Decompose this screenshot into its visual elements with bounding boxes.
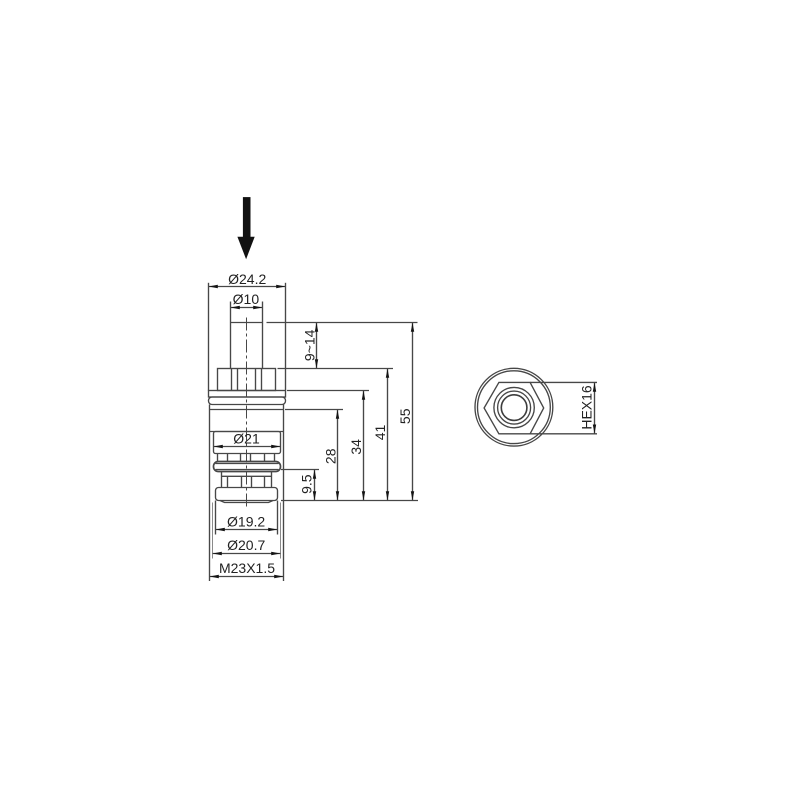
svg-text:41: 41 — [372, 425, 388, 441]
svg-text:HEX16: HEX16 — [578, 385, 594, 430]
svg-text:34: 34 — [348, 439, 364, 455]
svg-text:9~14: 9~14 — [301, 329, 317, 361]
svg-text:55: 55 — [397, 408, 413, 424]
svg-text:Ø19.2: Ø19.2 — [227, 513, 265, 529]
svg-text:Ø20.7: Ø20.7 — [227, 537, 265, 553]
svg-text:Ø21: Ø21 — [233, 430, 260, 446]
svg-text:M23X1.5: M23X1.5 — [219, 560, 275, 576]
svg-text:9.5: 9.5 — [299, 474, 315, 494]
svg-text:28: 28 — [323, 448, 339, 464]
svg-text:Ø24.2: Ø24.2 — [228, 271, 266, 287]
svg-text:Ø10: Ø10 — [233, 291, 260, 307]
